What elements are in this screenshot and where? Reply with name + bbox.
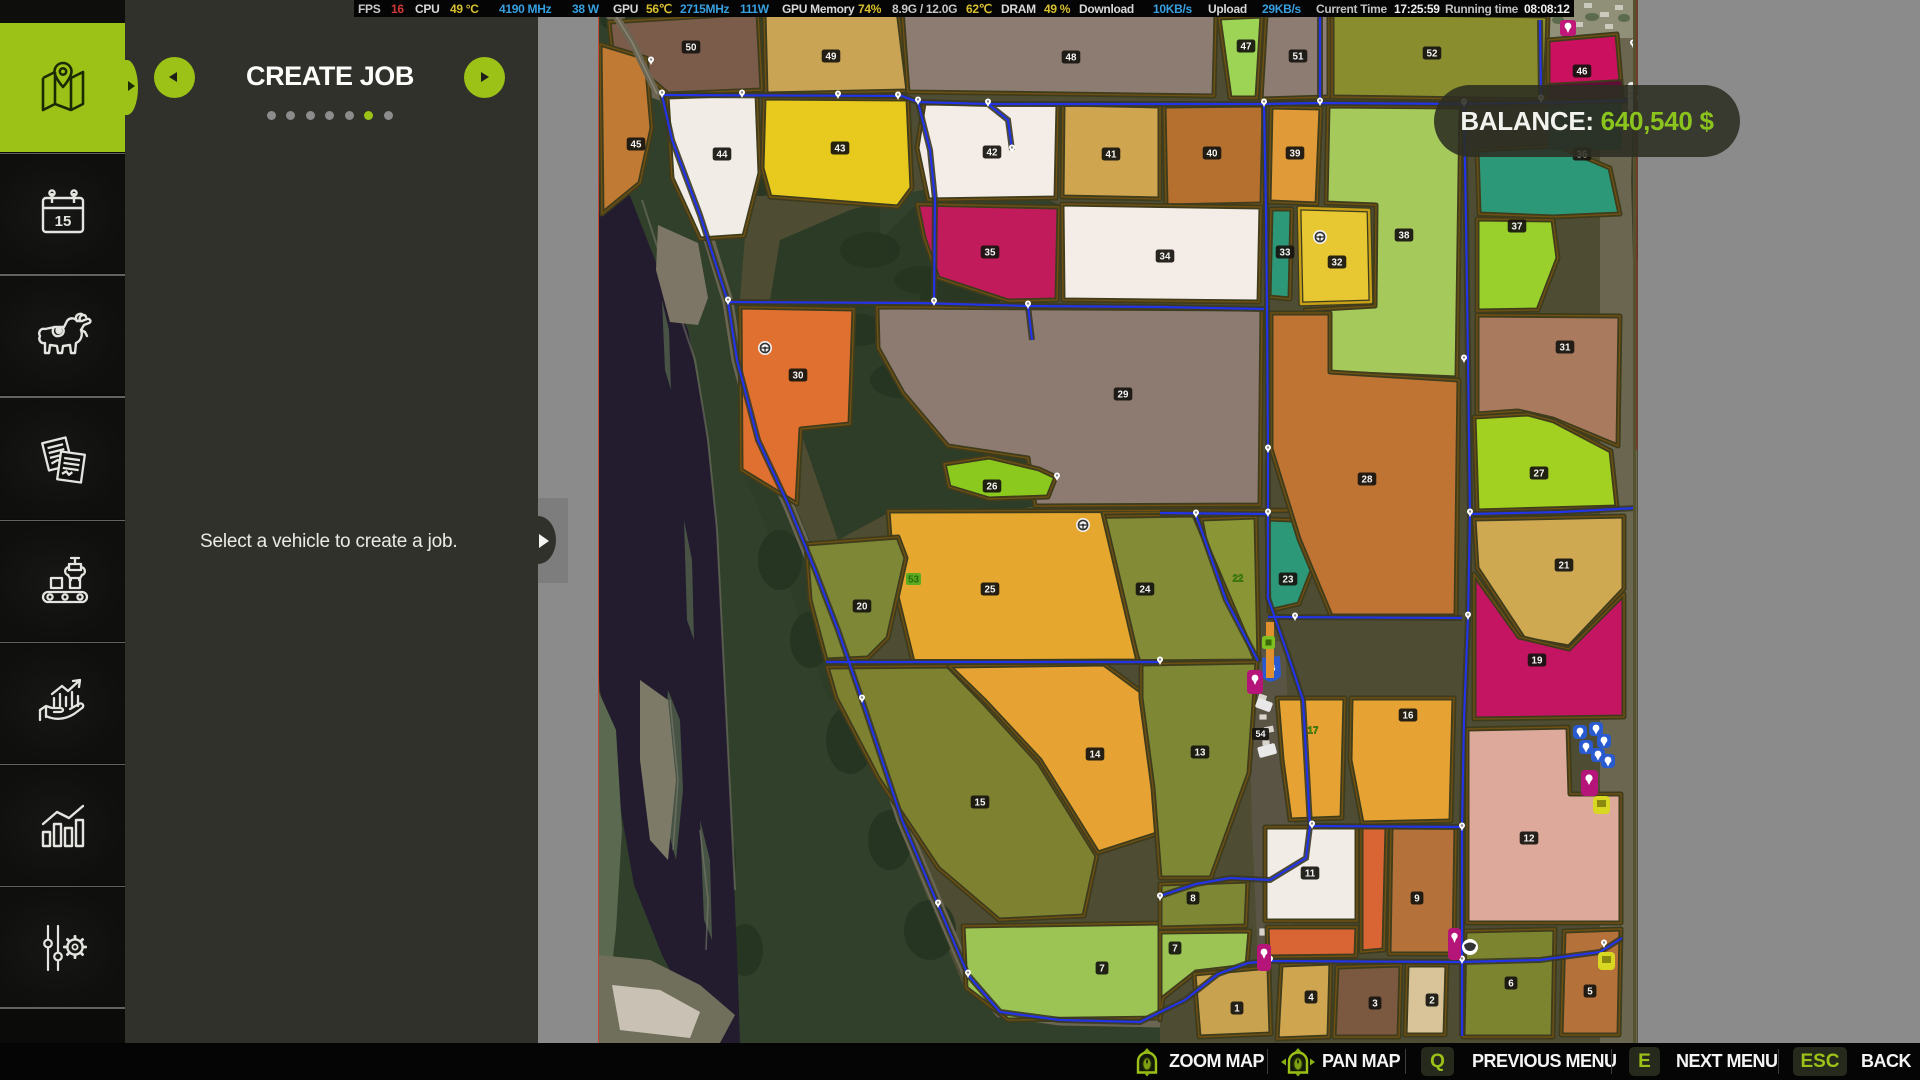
- svg-text:53: 53: [908, 575, 920, 586]
- svg-text:41: 41: [1106, 149, 1117, 160]
- svg-text:51: 51: [1293, 51, 1304, 62]
- svg-text:28: 28: [1362, 474, 1373, 485]
- svg-text:20: 20: [857, 601, 868, 612]
- svg-text:8: 8: [1190, 893, 1196, 904]
- svg-text:40: 40: [1207, 148, 1218, 159]
- svg-text:9: 9: [1414, 893, 1420, 904]
- svg-text:15: 15: [54, 213, 71, 230]
- svg-text:6: 6: [1508, 978, 1514, 989]
- svg-text:14: 14: [1090, 749, 1101, 760]
- svg-text:27: 27: [1534, 468, 1545, 479]
- svg-text:32: 32: [1332, 257, 1343, 268]
- svg-text:25: 25: [985, 584, 996, 595]
- svg-text:15: 15: [975, 797, 986, 808]
- svg-text:5: 5: [1587, 986, 1593, 997]
- svg-text:7: 7: [1099, 963, 1105, 974]
- svg-text:23: 23: [1283, 574, 1294, 585]
- svg-text:47: 47: [1241, 41, 1252, 52]
- svg-text:38: 38: [1399, 230, 1410, 241]
- svg-text:54: 54: [1255, 729, 1265, 739]
- svg-text:34: 34: [1160, 251, 1171, 262]
- svg-text:37: 37: [1512, 221, 1523, 232]
- svg-text:17: 17: [1308, 726, 1319, 737]
- svg-text:33: 33: [1280, 247, 1291, 258]
- svg-text:49: 49: [826, 51, 837, 62]
- svg-text:24: 24: [1140, 584, 1151, 595]
- svg-text:16: 16: [1403, 710, 1414, 721]
- svg-text:3: 3: [1372, 998, 1378, 1009]
- svg-text:48: 48: [1066, 52, 1077, 63]
- svg-text:19: 19: [1532, 655, 1543, 666]
- svg-text:31: 31: [1560, 342, 1571, 353]
- svg-text:46: 46: [1577, 66, 1588, 77]
- svg-text:44: 44: [717, 149, 728, 160]
- svg-text:4: 4: [1308, 992, 1314, 1003]
- svg-text:52: 52: [1427, 48, 1438, 59]
- svg-text:11: 11: [1305, 868, 1316, 879]
- svg-text:12: 12: [1524, 833, 1535, 844]
- svg-text:30: 30: [793, 370, 804, 381]
- svg-text:29: 29: [1118, 389, 1129, 400]
- svg-text:26: 26: [987, 481, 998, 492]
- svg-text:1: 1: [1234, 1003, 1240, 1014]
- svg-text:2: 2: [1429, 995, 1435, 1006]
- svg-text:45: 45: [631, 139, 642, 150]
- svg-text:7: 7: [1172, 943, 1178, 954]
- svg-text:22: 22: [1233, 574, 1244, 585]
- svg-text:35: 35: [985, 247, 996, 258]
- svg-text:13: 13: [1195, 747, 1206, 758]
- svg-text:43: 43: [835, 143, 846, 154]
- svg-text:42: 42: [987, 147, 998, 158]
- svg-text:21: 21: [1559, 560, 1570, 571]
- svg-text:50: 50: [686, 42, 697, 53]
- svg-text:39: 39: [1290, 148, 1301, 159]
